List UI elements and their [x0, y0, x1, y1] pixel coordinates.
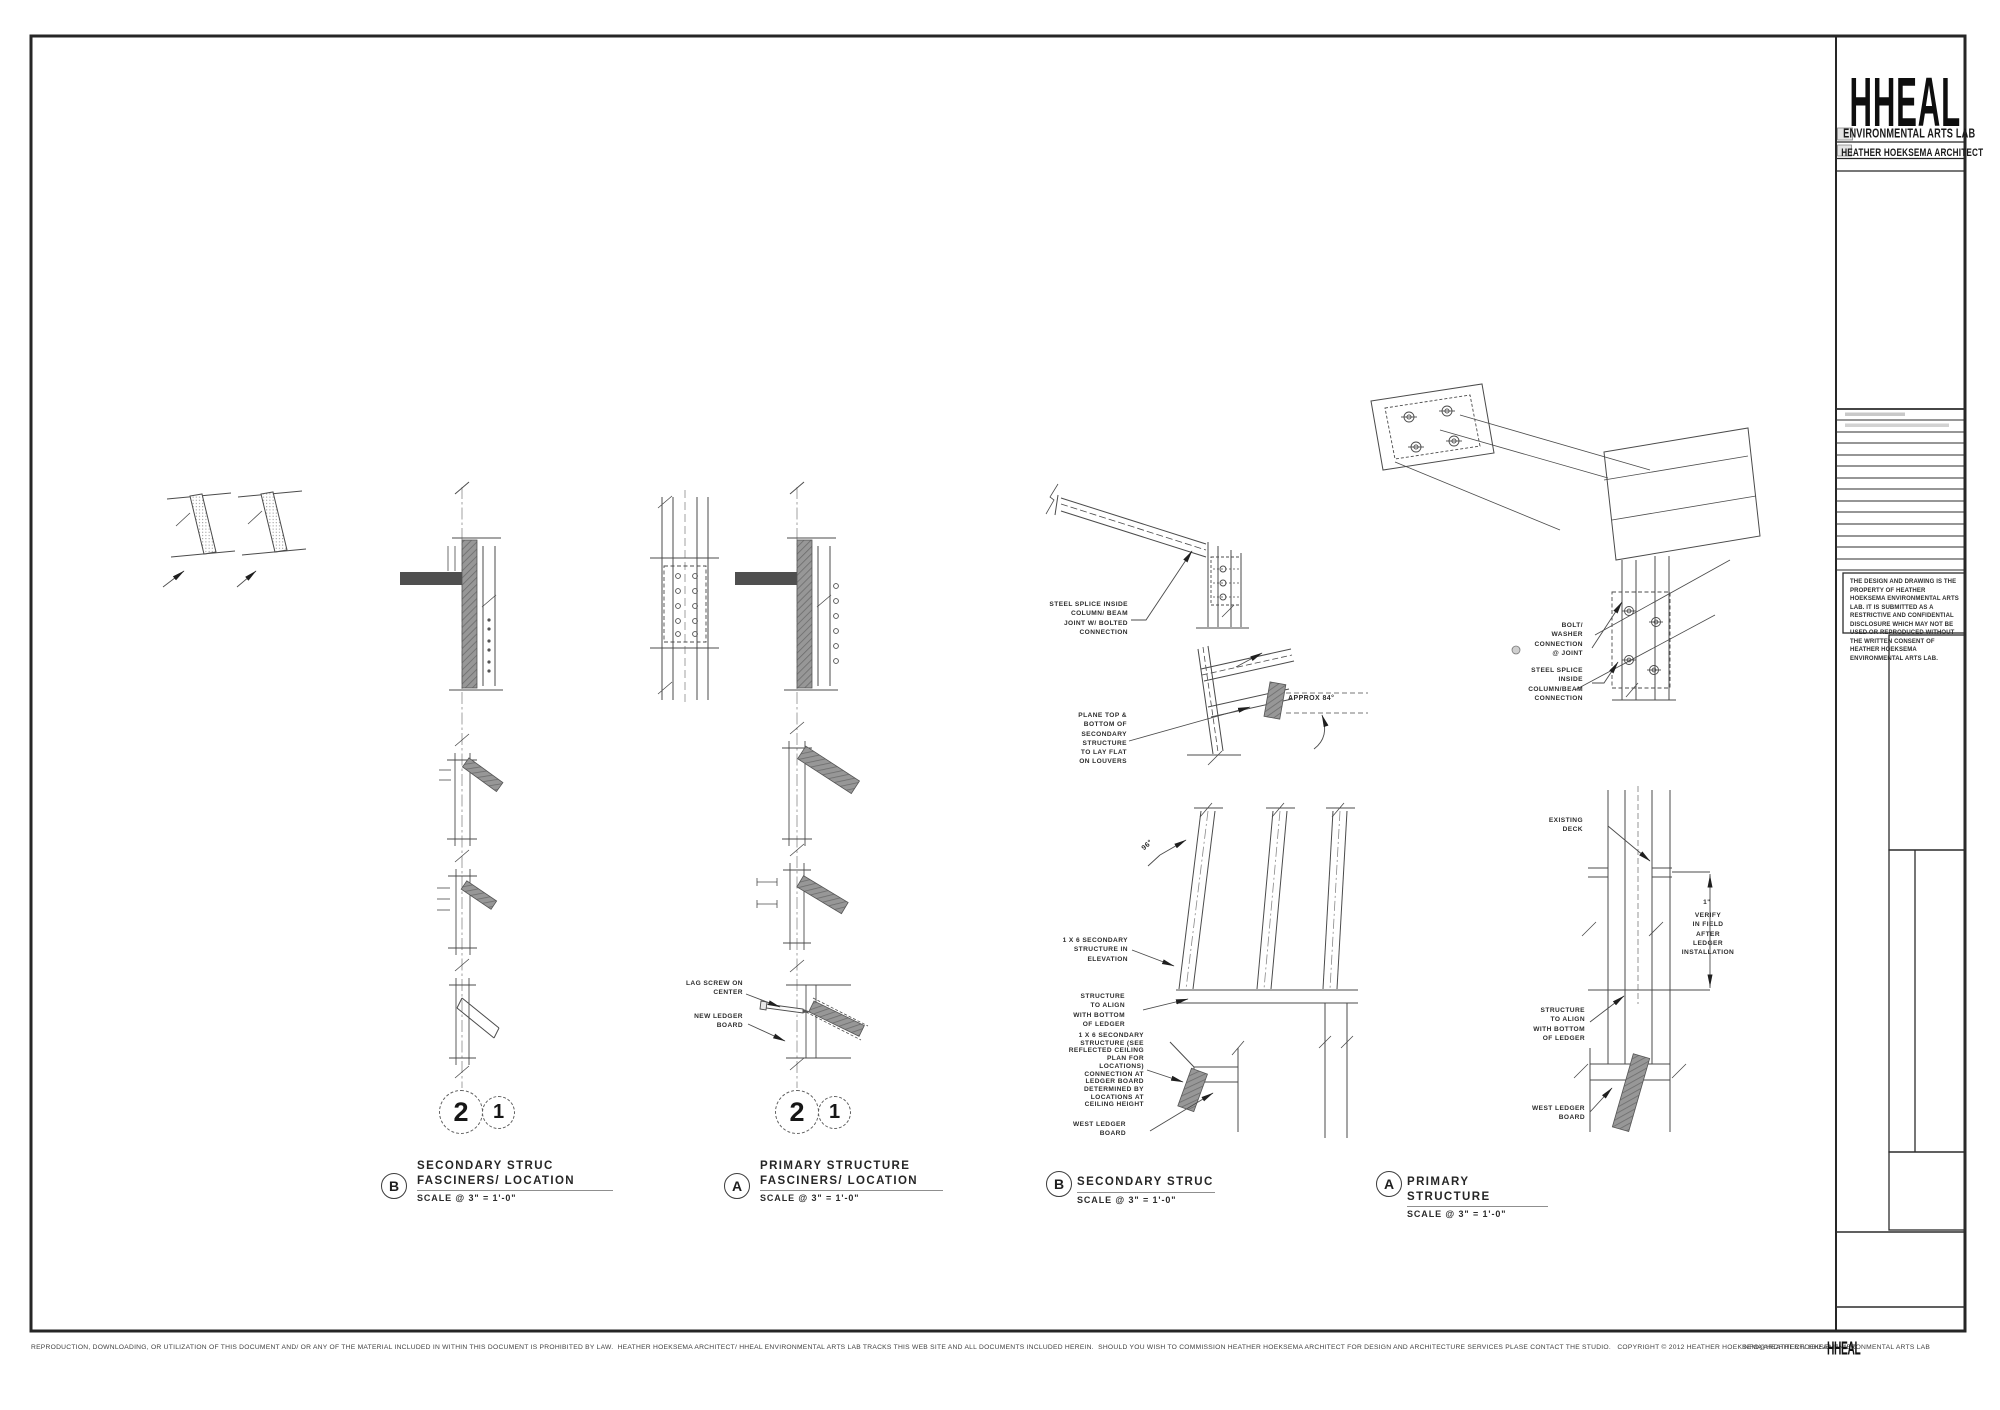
- detail-bubble-1: 1: [482, 1096, 515, 1129]
- detail-title-a1: PRIMARY STRUCTUREFASCINERS/ LOCATION SCA…: [760, 1159, 943, 1203]
- detail-b1-art: [163, 482, 503, 1088]
- detail-title-b2: SECONDARY STRUC SCALE @ 3" = 1'-0": [1077, 1175, 1215, 1205]
- annotation-lag-screw: LAG SCREW ON CENTER: [660, 979, 743, 998]
- annotation-1x6-elevation: 1 X 6 SECONDARY STRUCTURE IN ELEVATION: [1035, 936, 1128, 964]
- annotation-structure-align-b2: STRUCTURE TO ALIGN WITH BOTTOM OF LEDGER: [1040, 992, 1125, 1029]
- annotation-steel-splice-a2: STEEL SPLICE INSIDE COLUMN/BEAM CONNECTI…: [1495, 666, 1583, 703]
- annotation-west-ledger-a2: WEST LEDGER BOARD: [1504, 1104, 1585, 1123]
- titleblock-revision-rows: [1836, 409, 1965, 570]
- annotation-existing-deck: EXISTING DECK: [1510, 816, 1583, 835]
- detail-title-a1-text: PRIMARY STRUCTUREFASCINERS/ LOCATION: [760, 1159, 943, 1191]
- annotation-steel-splice-joint: STEEL SPLICE INSIDE COLUMN/ BEAM JOINT W…: [1030, 600, 1128, 637]
- detail-bubble-2: 2: [439, 1090, 483, 1134]
- annotation-plane-top: PLANE TOP & BOTTOM OF SECONDARY STRUCTUR…: [1040, 711, 1127, 767]
- detail-bubble-2b: 2: [775, 1090, 819, 1134]
- sheet-border: [31, 36, 1965, 1331]
- detail-marker-b1: B: [381, 1173, 407, 1199]
- detail-scale-a1: SCALE @ 3" = 1'-0": [760, 1193, 943, 1203]
- annotation-1x6-ceiling: 1 X 6 SECONDARY STRUCTURE (SEE REFLECTED…: [1038, 1032, 1144, 1109]
- titleblock-boxes: [1836, 573, 1965, 1307]
- titleblock-architect: HEATHER HOEKSEMA ARCHITECT: [1841, 146, 1963, 159]
- annotation-bolt-washer: BOLT/ WASHER CONNECTION @ JOINT: [1495, 621, 1583, 658]
- detail-scale-b2: SCALE @ 3" = 1'-0": [1077, 1195, 1215, 1205]
- detail-title-a2: PRIMARY STRUCTURE SCALE @ 3" = 1'-0": [1407, 1175, 1548, 1219]
- annotation-structure-align-a2: STRUCTURE TO ALIGN WITH BOTTOM OF LEDGER: [1500, 1006, 1585, 1043]
- detail-scale-b1: SCALE @ 3" = 1'-0": [417, 1193, 613, 1203]
- annotation-west-ledger-b2: WEST LEDGER BOARD: [1045, 1120, 1126, 1139]
- footer-logo: HHEAL: [1827, 1338, 1860, 1359]
- detail-bubble-1b: 1: [818, 1096, 851, 1129]
- sheet-line-art: [0, 0, 2000, 1410]
- detail-title-a2-text: PRIMARY STRUCTURE: [1407, 1175, 1548, 1207]
- drawing-sheet-page: { "details": { "b1": {"letter":"B","line…: [0, 0, 2000, 1410]
- detail-marker-b2: B: [1046, 1171, 1072, 1197]
- detail-marker-a1: A: [724, 1173, 750, 1199]
- annotation-new-ledger: NEW LEDGER BOARD: [665, 1012, 743, 1031]
- titleblock-disclaimer: THE DESIGN AND DRAWING IS THE PROPERTY O…: [1844, 574, 1964, 663]
- titleblock-studio: ENVIRONMENTAL ARTS LAB: [1843, 127, 1961, 141]
- annotation-verify-in-field: VERIFY IN FIELD AFTER LEDGER INSTALLATIO…: [1662, 911, 1754, 957]
- detail-marker-a2: A: [1376, 1171, 1402, 1197]
- annotation-approx-84: APPROX 84°: [1288, 694, 1358, 703]
- detail-scale-a2: SCALE @ 3" = 1'-0": [1407, 1209, 1548, 1219]
- detail-title-b1: SECONDARY STRUCFASCINERS/ LOCATION SCALE…: [417, 1159, 613, 1203]
- detail-title-b2-text: SECONDARY STRUC: [1077, 1175, 1215, 1193]
- detail-title-b1-text: SECONDARY STRUCFASCINERS/ LOCATION: [417, 1159, 613, 1191]
- annotation-one-inch: 1": [1698, 898, 1716, 907]
- footer-legal-text: REPRODUCTION, DOWNLOADING, OR UTILIZATIO…: [31, 1344, 1930, 1351]
